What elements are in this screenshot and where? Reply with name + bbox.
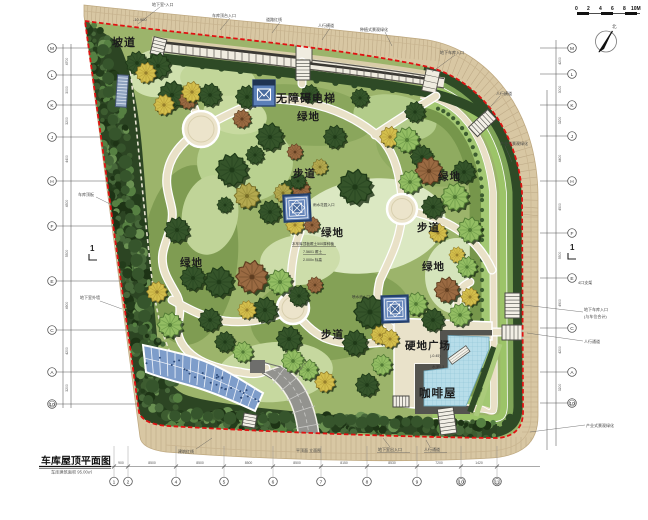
svg-text:绿地: 绿地 [422,260,445,273]
svg-text:地下室外墙: 地下室外墙 [80,294,100,300]
svg-text:4900: 4900 [65,302,69,310]
svg-text:车库建筑面积 95.00㎡: 车库建筑面积 95.00㎡ [51,469,93,476]
svg-text:5: 5 [223,479,226,485]
svg-text:F: F [51,224,54,230]
svg-text:8530: 8530 [388,461,396,465]
svg-text:6: 6 [272,479,275,485]
svg-text:8: 8 [623,6,626,12]
svg-text:车库顶台入口: 车库顶台入口 [212,12,236,18]
svg-text:4口支架: 4口支架 [578,279,592,285]
svg-text:车库屋顶平面图: 车库屋顶平面图 [41,454,111,467]
svg-text:3200: 3200 [558,384,562,392]
svg-text:-10.900: -10.900 [133,17,147,22]
svg-text:F: F [571,231,574,237]
svg-text:H: H [570,179,574,185]
svg-text:步道: 步道 [417,221,440,234]
svg-text:3000: 3000 [558,86,562,94]
svg-text:车库顶板: 车库顶板 [78,191,94,197]
svg-text:2: 2 [127,479,130,485]
svg-text:北: 北 [612,23,617,30]
svg-text:(与车位合计): (与车位合计) [584,313,607,319]
svg-text:绿地: 绿地 [321,226,344,239]
svg-text:E: E [570,276,573,282]
svg-text:L: L [51,73,54,79]
svg-text:种植式景观绿化: 种植式景观绿化 [360,26,388,32]
svg-text:4900: 4900 [558,299,562,307]
svg-text:5500: 5500 [558,252,562,260]
svg-text:咖啡屋: 咖啡屋 [419,386,457,400]
svg-text:0: 0 [575,6,578,12]
svg-text:水深0.3: 水深0.3 [432,364,444,369]
svg-text:1: 1 [90,244,95,253]
svg-text:硬地广场: 硬地广场 [405,339,451,352]
svg-text:4500: 4500 [65,200,69,208]
svg-text:喷水池入口: 喷水池入口 [352,294,370,299]
svg-text:11: 11 [495,479,500,485]
svg-text:地下车库入口: 地下车库入口 [584,306,608,312]
svg-text:10: 10 [49,402,55,408]
svg-text:步道: 步道 [321,328,344,341]
svg-text:4700: 4700 [65,58,69,66]
svg-text:H: H [50,179,54,185]
svg-text:M: M [570,46,574,52]
svg-text:8500: 8500 [245,461,253,465]
svg-text:道路红线: 道路红线 [266,16,282,22]
svg-text:2: 2 [587,6,590,12]
svg-text:人行通道: 人行通道 [584,338,600,344]
svg-text:无障碍电梯: 无障碍电梯 [275,91,336,105]
svg-text:C: C [570,326,574,332]
svg-text:绿地: 绿地 [297,110,320,123]
svg-text:C: C [50,328,54,334]
svg-text:8150: 8150 [340,461,348,465]
svg-text:产业式景观绿化: 产业式景观绿化 [500,140,528,146]
svg-text:L: L [571,72,574,78]
svg-text:7200: 7200 [435,461,443,465]
svg-text:平顶面 立面图: 平顶面 立面图 [296,447,321,453]
svg-text:4200: 4200 [558,57,562,65]
svg-text:4400: 4400 [558,155,562,163]
svg-text:4: 4 [599,6,602,12]
svg-text:人行横道: 人行横道 [318,22,334,28]
svg-text:绿地: 绿地 [438,170,461,183]
svg-text:4200: 4200 [558,346,562,354]
svg-text:4500: 4500 [558,203,562,211]
svg-text:10: 10 [458,479,464,485]
svg-text:6: 6 [611,6,614,12]
svg-text:人行通道: 人行通道 [424,446,440,452]
svg-text:产业式景观绿化: 产业式景观绿化 [586,422,614,428]
svg-text:(-0.45): (-0.45) [430,354,441,358]
svg-text:3200: 3200 [65,117,69,125]
svg-text:8500: 8500 [196,461,204,465]
svg-text:5500: 5500 [65,250,69,258]
svg-text:3000: 3000 [65,86,69,94]
svg-text:4400: 4400 [65,155,69,163]
svg-text:雨水花园入口: 雨水花园入口 [313,202,335,207]
svg-text:8: 8 [366,479,369,485]
svg-text:步道: 步道 [293,167,316,180]
svg-text:建筑红线: 建筑红线 [178,448,194,454]
svg-text:4200: 4200 [65,347,69,355]
svg-text:7.5601 覆土: 7.5601 覆土 [303,249,323,254]
svg-text:地下车库入口: 地下车库入口 [440,49,464,55]
svg-text:坡道: 坡道 [112,35,136,49]
svg-text:1: 1 [570,243,575,252]
svg-text:9: 9 [416,479,419,485]
svg-text:2.000x 标高: 2.000x 标高 [303,257,322,262]
svg-text:E: E [50,279,53,285]
svg-text:1: 1 [113,479,116,485]
svg-text:10: 10 [569,401,575,407]
svg-text:1420: 1420 [475,461,483,465]
svg-text:4: 4 [175,479,178,485]
svg-text:900: 900 [118,461,124,465]
svg-text:人行横道: 人行横道 [496,90,512,96]
svg-text:地下室*入口: 地下室*入口 [152,1,174,7]
svg-text:M: M [50,46,54,52]
svg-text:绿地: 绿地 [180,256,203,269]
svg-text:本车库顶板覆土500厚种植: 本车库顶板覆土500厚种植 [292,241,334,246]
svg-text:7: 7 [320,479,323,485]
svg-text:3200: 3200 [558,117,562,125]
svg-text:3200: 3200 [65,384,69,392]
svg-text:8500: 8500 [293,461,301,465]
svg-text:8500: 8500 [148,461,156,465]
svg-text:10M: 10M [631,6,641,12]
